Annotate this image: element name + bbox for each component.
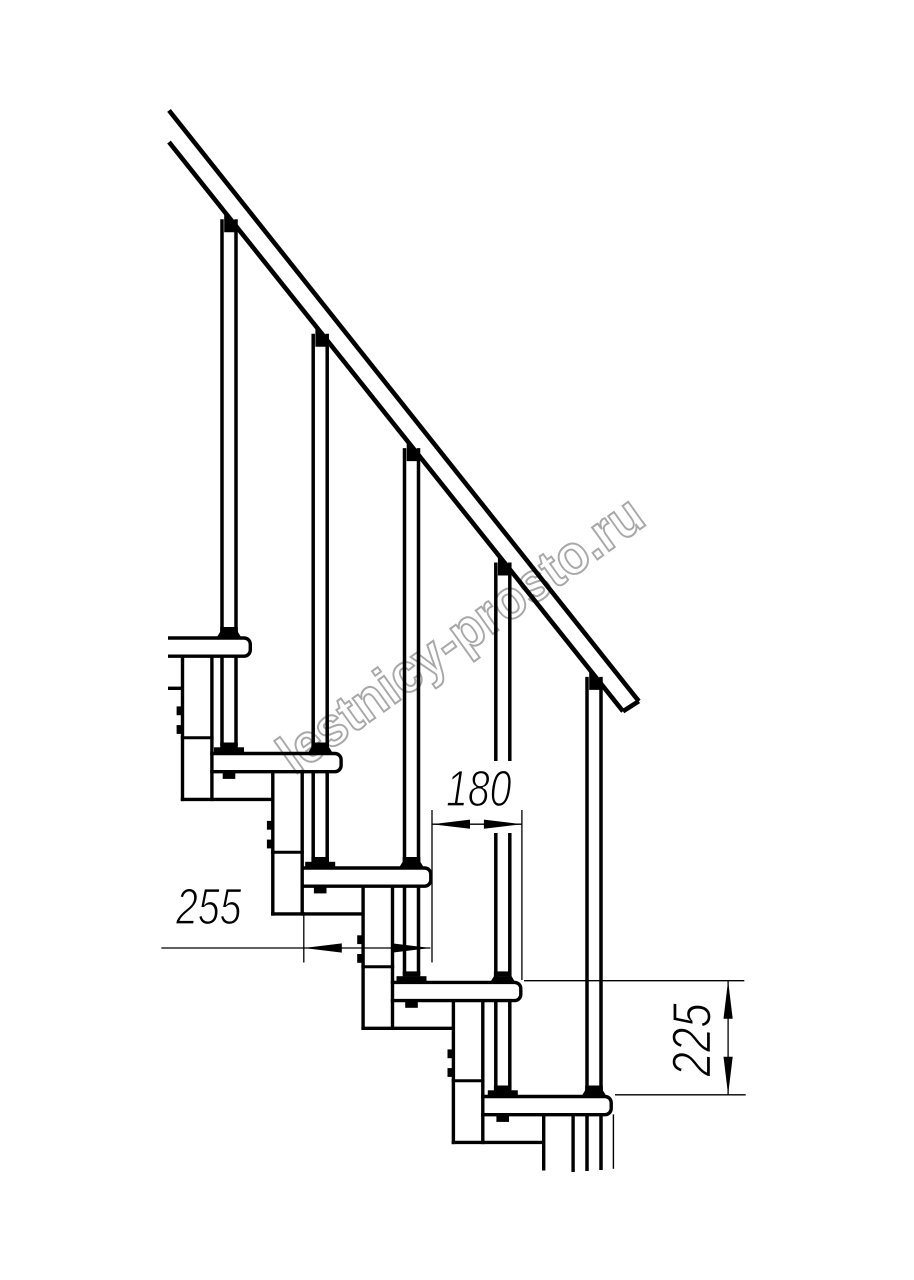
svg-text:255: 255 [175, 878, 242, 935]
svg-text:180: 180 [446, 760, 512, 817]
svg-text:225: 225 [661, 1003, 723, 1078]
